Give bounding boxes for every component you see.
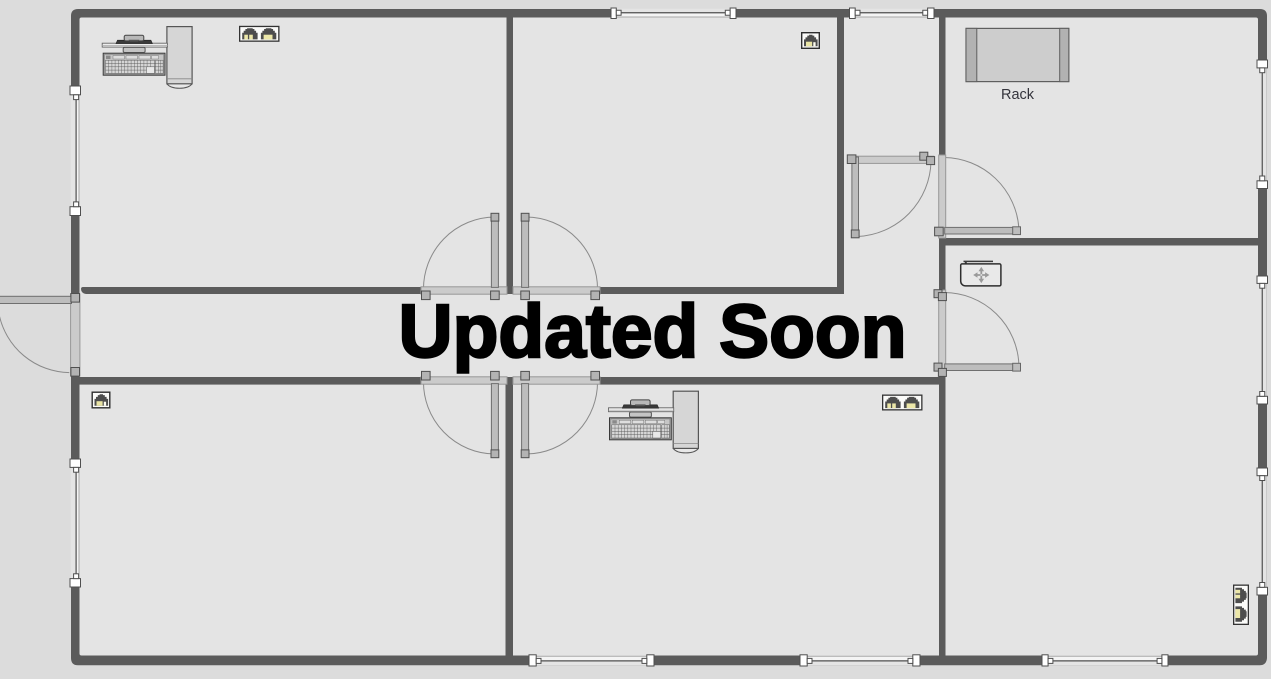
- svg-text:Rack: Rack: [1001, 87, 1035, 103]
- svg-text:Updated Soon: Updated Soon: [399, 289, 907, 373]
